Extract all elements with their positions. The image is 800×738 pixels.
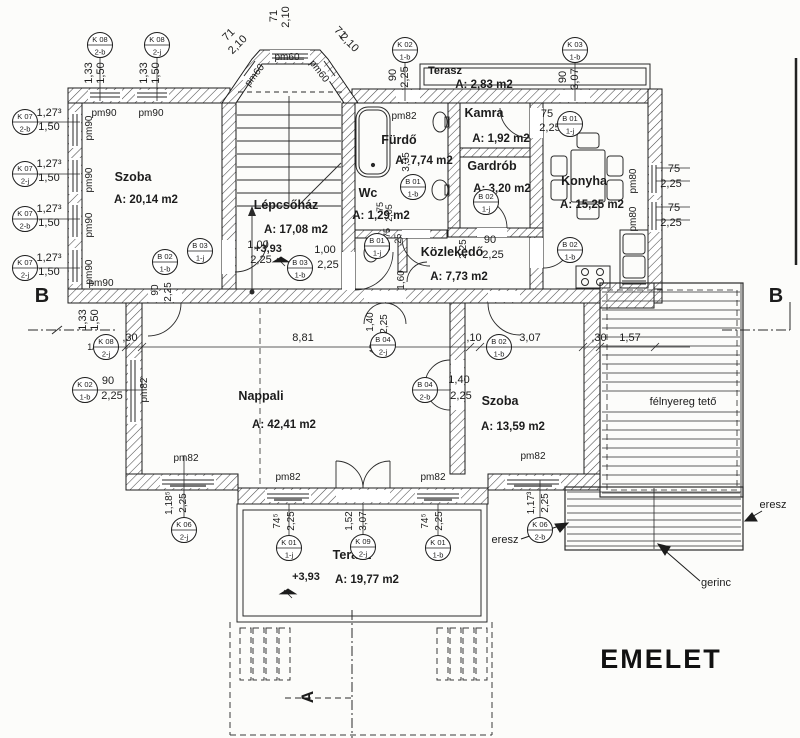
dim-label: 2,25 <box>540 493 551 513</box>
dim-label: ,10 <box>466 332 481 344</box>
ref-marker-sub: 2-j <box>153 48 162 57</box>
dim-label: eresz <box>492 534 519 546</box>
dim-label: 90 <box>557 71 569 83</box>
dim-label: 2,10 <box>280 6 292 27</box>
dim-label: 1,27³ <box>36 107 61 119</box>
dim-label: ,25 <box>393 234 403 247</box>
dim-label: 1,00 <box>314 244 335 256</box>
pillar <box>266 628 277 680</box>
ref-marker-sub: 1-b <box>494 350 505 359</box>
dim-label: 75 <box>668 163 680 175</box>
ref-marker-sub: 2-j <box>21 271 30 280</box>
dim-label: 74⁵ <box>272 513 283 528</box>
dim-label: 90 <box>387 69 399 81</box>
dim-label: 1,00 <box>247 239 268 251</box>
ref-marker-code: K 08 <box>92 35 107 44</box>
dim-label: 2,25 <box>660 178 681 190</box>
ref-marker-code: B 02 <box>491 337 506 346</box>
dim-label: 1,40 <box>448 374 469 386</box>
room-area: A: 7,73 m2 <box>430 271 488 283</box>
floorplan-page: 712,10712,10712,10pm60pm60pm601,331,501,… <box>0 0 800 738</box>
dim-label: ,30 <box>122 332 137 344</box>
kitchen-sink <box>623 256 645 278</box>
ref-marker-code: B 04 <box>375 335 390 344</box>
pillar <box>450 628 461 680</box>
dim-label: 3,07 <box>569 68 581 89</box>
dim-label: 1,52 <box>344 511 355 531</box>
ref-marker-code: K 07 <box>17 258 32 267</box>
dim-label: B <box>769 285 783 307</box>
dim-label: 90 <box>102 375 114 387</box>
dim-label: 2,25 <box>450 390 471 402</box>
dim-label: 2,25 <box>250 254 271 266</box>
ref-marker-sub: 1-j <box>566 127 575 136</box>
gerinc-leader <box>662 548 700 581</box>
room-label: Gardrób <box>467 159 517 173</box>
ref-marker-sub: 1-j <box>482 205 491 214</box>
ref-marker-sub: 1-b <box>570 53 581 62</box>
dim-label: 90 <box>150 284 161 296</box>
ref-marker-code: K 01 <box>281 538 296 547</box>
dim-label: 2,25 <box>317 259 338 271</box>
dim-label: +3,93 <box>292 571 320 583</box>
dim-label: 2,25 <box>163 282 174 302</box>
eresz-arrow <box>555 523 568 532</box>
dim-label: pm90 <box>84 115 95 140</box>
dim-label: 1,50 <box>38 217 59 229</box>
ref-marker-code: B 01 <box>369 236 384 245</box>
chair <box>577 133 599 148</box>
ref-marker-code: B 01 <box>405 177 420 186</box>
ref-marker-code: B 03 <box>292 258 307 267</box>
dim-label: 1,60 <box>396 270 407 290</box>
ref-marker-sub: 1-b <box>295 271 306 280</box>
chair <box>551 156 567 176</box>
ref-marker-code: B 02 <box>157 252 172 261</box>
ref-marker-sub: 1-j <box>373 249 382 258</box>
room-label: Terasz <box>428 65 463 77</box>
ref-marker-code: K 03 <box>567 40 582 49</box>
dim-label: 90 <box>484 234 496 246</box>
ref-marker-code: K 07 <box>17 209 32 218</box>
dim-label: 74⁵ <box>420 513 431 528</box>
floorplan-drawing: 712,10712,10712,10pm60pm60pm601,331,501,… <box>0 0 800 738</box>
ref-marker-code: K 08 <box>98 337 113 346</box>
ref-marker-sub: 2-j <box>21 177 30 186</box>
ref-marker-sub: 1-j <box>285 551 294 560</box>
room-label: Lépcsőház <box>254 198 319 212</box>
ref-marker-sub: 1-b <box>433 551 444 560</box>
level-marker <box>273 257 289 262</box>
dim-label: 75 <box>668 202 680 214</box>
dim-label: 1,18⁵ <box>164 491 175 515</box>
dim-label: 1,50 <box>95 62 107 83</box>
ref-marker-sub: 1-b <box>408 190 419 199</box>
room-area: A: 2,83 m2 <box>455 79 513 91</box>
ref-marker-code: B 01 <box>562 114 577 123</box>
room-label: Konyha <box>561 174 608 188</box>
dim-label: 2,25 <box>482 249 503 261</box>
room-label: Szoba <box>482 394 520 408</box>
ref-marker-sub: 1-b <box>80 393 91 402</box>
dim-label: 8,81 <box>292 332 313 344</box>
dim-label: 1,27³ <box>36 252 61 264</box>
ref-marker-sub: 2-b <box>95 48 106 57</box>
room-label: félnyereg tető <box>650 396 717 408</box>
dim-label: pm80 <box>628 168 639 193</box>
dim-label: pm90 <box>84 212 95 237</box>
dim-label: 1,27³ <box>36 203 61 215</box>
ref-marker-sub: 1-b <box>160 265 171 274</box>
ref-marker-sub: 1-b <box>400 53 411 62</box>
room-area: A: 13,59 m2 <box>481 421 545 433</box>
dim-label: ,30 <box>591 332 606 344</box>
ref-marker-sub: 2-j <box>102 350 111 359</box>
ref-marker-sub: 2-b <box>420 393 431 402</box>
room-area: A: 7,74 m2 <box>395 155 453 167</box>
ref-marker-sub: 2-j <box>359 550 368 559</box>
room-label: Wc <box>359 186 378 200</box>
ref-marker-code: K 07 <box>17 112 32 121</box>
room-area: A: 1,92 m2 <box>472 133 530 145</box>
room-label: Közlekedő <box>421 245 484 259</box>
room-label: Kamra <box>465 106 505 120</box>
pillar <box>476 628 487 680</box>
kitchen-sink <box>623 234 645 254</box>
ref-marker-code: B 03 <box>192 241 207 250</box>
ref-marker-code: K 02 <box>397 40 412 49</box>
dim-label: 2,25 <box>101 390 122 402</box>
dim-label: 71 <box>268 10 280 22</box>
ref-marker-code: K 09 <box>355 537 370 546</box>
room-area: A: 15,25 m2 <box>560 199 624 211</box>
room-area: A: 20,14 m2 <box>114 194 178 206</box>
dim-label: 2,25 <box>660 217 681 229</box>
dim-label: 3,07 <box>519 332 540 344</box>
ref-marker-code: B 02 <box>478 192 493 201</box>
dim-label: 2,25 <box>434 511 445 531</box>
pillar <box>240 628 251 680</box>
dim-label: 1,33 <box>83 62 95 83</box>
room-label: Nappali <box>238 389 283 403</box>
dim-label: pm90 <box>91 108 116 119</box>
dim-label: 1,57 <box>619 332 640 344</box>
dim-label: 3,07 <box>358 511 369 531</box>
ref-marker-code: K 02 <box>77 380 92 389</box>
dim-label: pm60 <box>274 52 299 63</box>
dim-label: pm90 <box>138 108 163 119</box>
dim-label: pm82 <box>391 111 416 122</box>
room-area: A: 17,08 m2 <box>264 224 328 236</box>
washbasin <box>432 180 448 200</box>
dim-label: pm90 <box>88 278 113 289</box>
rooms-layer: SzobaA: 20,14 m2LépcsőházA: 17,08 m2Fürd… <box>114 65 716 586</box>
dim-label: 1,50 <box>38 121 59 133</box>
dim-label: pm82 <box>173 453 198 464</box>
dim-label: 2,25 <box>379 314 390 334</box>
room-label: Fürdő <box>381 133 417 147</box>
dim-label: 1,50 <box>38 172 59 184</box>
level-marker <box>280 589 296 594</box>
dim-label: pm82 <box>275 472 300 483</box>
dim-label: 1,40 <box>365 312 376 332</box>
ground-floor-outline <box>230 622 492 735</box>
dim-label: 1,33 <box>77 309 89 330</box>
dim-label: 2,25 <box>286 511 297 531</box>
dim-label: 1,17³ <box>526 491 537 514</box>
chair <box>607 180 623 200</box>
ref-marker-sub: 2-b <box>535 533 546 542</box>
ref-marker-sub: 1-b <box>565 253 576 262</box>
dim-label: B <box>35 285 49 307</box>
roof-boarding <box>602 292 740 493</box>
dim-label: pm80 <box>628 206 639 231</box>
ref-marker-sub: 2-b <box>20 222 31 231</box>
ref-marker-sub: 2-j <box>180 533 189 542</box>
dim-label: pm90 <box>84 167 95 192</box>
ref-marker-sub: 2-b <box>20 125 31 134</box>
dim-label: 75 <box>541 108 553 120</box>
ref-marker-code: K 06 <box>176 520 191 529</box>
pillar <box>279 628 290 680</box>
dim-label: 2,10 <box>337 31 361 55</box>
chair <box>607 156 623 176</box>
ref-marker-sub: 2-j <box>379 348 388 357</box>
ref-marker-code: K 01 <box>430 538 445 547</box>
dim-label: 1,27³ <box>36 158 61 170</box>
dim-label: A <box>298 691 317 703</box>
dim-label: 1,33 <box>138 62 150 83</box>
dim-label: gerinc <box>701 577 731 589</box>
kitchen-counter <box>620 230 648 288</box>
pillar <box>437 628 448 680</box>
plan-title: EMELET <box>586 644 736 675</box>
dim-label: 2,25 <box>399 66 411 87</box>
room-area: A: 42,41 m2 <box>252 419 316 431</box>
dim-label: pm82 <box>420 472 445 483</box>
ref-marker-sub: 1-j <box>196 254 205 263</box>
dim-label: eresz <box>760 499 787 511</box>
dim-label: 1,50 <box>89 309 101 330</box>
pillar <box>463 628 474 680</box>
ref-marker-code: K 07 <box>17 164 32 173</box>
ref-marker-code: K 06 <box>532 520 547 529</box>
eresz-arrow <box>745 513 757 521</box>
dim-label: 2,25 <box>178 493 189 513</box>
dim-label: pm82 <box>139 377 150 402</box>
pillar <box>253 628 264 680</box>
dim-label: 1,50 <box>38 266 59 278</box>
roof-upper <box>600 283 743 497</box>
room-label: Szoba <box>115 170 153 184</box>
room-area: A: 19,77 m2 <box>335 574 399 586</box>
ref-marker-code: B 04 <box>417 380 432 389</box>
dim-label: 1,50 <box>150 62 162 83</box>
ref-marker-code: K 08 <box>149 35 164 44</box>
ref-marker-code: B 02 <box>562 240 577 249</box>
dim-label: pm82 <box>520 451 545 462</box>
room-area: A: 1,29 m2 <box>352 210 410 222</box>
